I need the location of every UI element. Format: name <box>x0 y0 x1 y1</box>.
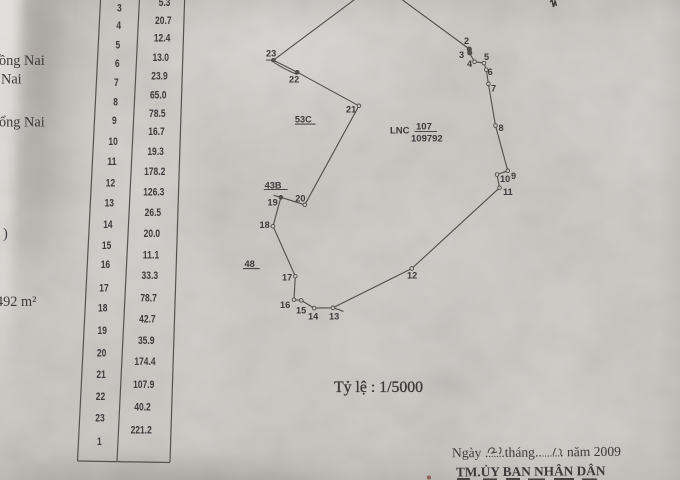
svg-text:11: 11 <box>107 156 116 168</box>
svg-text:23: 23 <box>95 413 104 425</box>
svg-text:20.7: 20.7 <box>155 15 172 27</box>
svg-text:7: 7 <box>491 84 496 94</box>
svg-text:12: 12 <box>407 271 417 281</box>
svg-text:126.3: 126.3 <box>143 187 164 199</box>
svg-text:5.3: 5.3 <box>159 0 171 9</box>
svg-text:10: 10 <box>108 136 117 148</box>
svg-text:107: 107 <box>416 122 432 133</box>
svg-text:48: 48 <box>245 259 255 269</box>
svg-text:492 m²: 492 m² <box>0 294 36 310</box>
svg-text:4: 4 <box>116 20 121 32</box>
svg-text:10: 10 <box>500 174 510 184</box>
svg-text:8: 8 <box>113 96 118 108</box>
svg-text:14: 14 <box>103 219 112 231</box>
svg-text:17: 17 <box>99 283 108 295</box>
svg-text:35.9: 35.9 <box>138 335 155 347</box>
svg-text:): ) <box>3 226 8 242</box>
svg-text:4: 4 <box>467 59 473 69</box>
svg-text:221.2: 221.2 <box>131 425 152 437</box>
svg-text:78.7: 78.7 <box>140 293 157 305</box>
svg-text:12: 12 <box>106 178 115 190</box>
svg-text:15: 15 <box>102 240 111 252</box>
svg-text:22: 22 <box>96 391 105 403</box>
svg-text:20: 20 <box>295 193 305 203</box>
svg-text:13: 13 <box>329 312 339 322</box>
svg-text:17: 17 <box>282 273 292 283</box>
svg-text:19.3: 19.3 <box>147 146 164 158</box>
svg-text:18: 18 <box>98 303 107 315</box>
svg-text:109792: 109792 <box>411 134 443 145</box>
svg-text:11.1: 11.1 <box>143 250 160 262</box>
svg-text:13: 13 <box>105 198 114 210</box>
svg-text:14: 14 <box>308 312 319 322</box>
svg-text:9: 9 <box>112 115 117 127</box>
svg-text:13.0: 13.0 <box>152 52 169 64</box>
svg-text:5: 5 <box>116 40 121 52</box>
svg-text:12.4: 12.4 <box>154 33 171 45</box>
svg-text:33.3: 33.3 <box>142 270 159 282</box>
svg-text:21: 21 <box>96 369 105 381</box>
svg-text:3: 3 <box>117 3 122 15</box>
svg-text:2: 2 <box>464 36 469 46</box>
svg-text:20: 20 <box>97 348 106 360</box>
svg-text:LNC: LNC <box>390 126 410 137</box>
svg-text:16.7: 16.7 <box>148 126 165 138</box>
svg-text:Tỷ lệ : 1/5000: Tỷ lệ : 1/5000 <box>334 379 423 396</box>
svg-text:ồng Nai: ồng Nai <box>0 53 45 69</box>
svg-text:15: 15 <box>296 306 306 316</box>
svg-text:107.9: 107.9 <box>133 379 154 391</box>
svg-text:18: 18 <box>260 220 270 230</box>
svg-text:9: 9 <box>511 171 516 181</box>
svg-text:19: 19 <box>98 325 107 337</box>
svg-text:8: 8 <box>499 123 504 133</box>
svg-text:6: 6 <box>488 67 493 77</box>
svg-text:19: 19 <box>268 197 278 207</box>
svg-text:53C: 53C <box>295 114 312 124</box>
svg-text:22: 22 <box>289 75 299 85</box>
svg-text:21: 21 <box>346 105 356 115</box>
svg-text:16: 16 <box>280 300 290 310</box>
svg-text:26.5: 26.5 <box>145 207 162 219</box>
svg-text:23: 23 <box>266 49 276 59</box>
svg-text:Ngày .......tháng.......... nă: Ngày .......tháng.......... năm 2009 <box>452 444 621 460</box>
svg-text:20.0: 20.0 <box>144 228 161 240</box>
svg-text:174.4: 174.4 <box>134 356 155 368</box>
svg-text:40.2: 40.2 <box>134 402 151 414</box>
svg-text:TM.ỦY BAN NHÂN DÂN: TM.ỦY BAN NHÂN DÂN <box>456 463 606 479</box>
svg-text:23.9: 23.9 <box>151 71 168 83</box>
svg-text:78.5: 78.5 <box>149 108 166 120</box>
svg-text:42.7: 42.7 <box>139 314 156 326</box>
svg-text:3: 3 <box>459 50 464 60</box>
svg-text:5: 5 <box>484 52 489 62</box>
svg-text:178.2: 178.2 <box>144 166 165 178</box>
svg-text:Nai: Nai <box>1 72 22 88</box>
svg-text:1: 1 <box>97 436 102 448</box>
svg-text:6: 6 <box>115 58 120 70</box>
svg-text:11: 11 <box>503 187 513 197</box>
svg-text:43B: 43B <box>265 180 282 190</box>
svg-text:7: 7 <box>114 77 119 89</box>
svg-text:65.0: 65.0 <box>150 90 167 102</box>
svg-text:ổng Nai: ổng Nai <box>0 114 45 130</box>
svg-text:16: 16 <box>101 259 110 271</box>
